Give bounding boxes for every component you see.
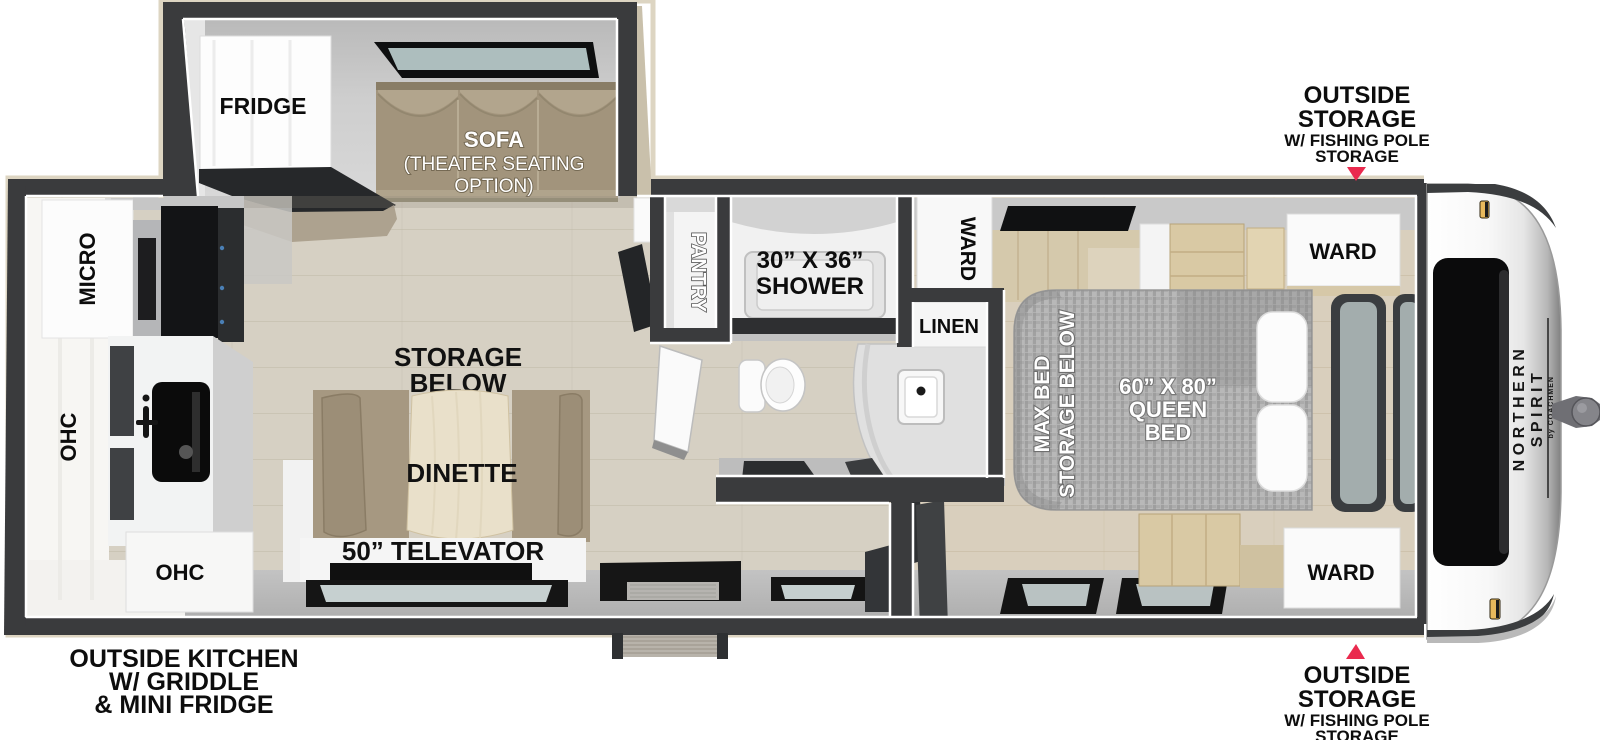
svg-text:DINETTE: DINETTE (406, 458, 517, 488)
svg-text:QUEEN: QUEEN (1129, 397, 1207, 422)
svg-text:OUTSIDE: OUTSIDE (1304, 662, 1411, 689)
svg-text:SHOWER: SHOWER (756, 273, 864, 300)
svg-text:OPTION): OPTION) (454, 176, 533, 197)
svg-text:OHC: OHC (156, 560, 205, 585)
svg-text:OHC: OHC (56, 412, 81, 461)
svg-text:WARD: WARD (1307, 560, 1374, 585)
svg-text:STORAGE: STORAGE (1315, 147, 1399, 166)
svg-text:MAX BED: MAX BED (1031, 356, 1054, 453)
svg-text:STORAGE BELOW: STORAGE BELOW (1056, 310, 1079, 498)
svg-text:60” X 80”: 60” X 80” (1119, 374, 1217, 399)
svg-text:STORAGE: STORAGE (1298, 686, 1416, 713)
svg-text:WARD: WARD (956, 217, 979, 281)
svg-text:SPIRIT: SPIRIT (1529, 369, 1546, 448)
svg-text:BED: BED (1145, 420, 1191, 445)
svg-text:& MINI FRIDGE: & MINI FRIDGE (94, 691, 273, 719)
svg-text:NORTHERN: NORTHERN (1511, 345, 1528, 472)
svg-text:50” TELEVATOR: 50” TELEVATOR (342, 536, 544, 566)
svg-text:WARD: WARD (1309, 239, 1376, 264)
svg-text:(THEATER SEATING: (THEATER SEATING (404, 154, 585, 175)
svg-text:LINEN: LINEN (919, 316, 979, 338)
svg-text:STORAGE: STORAGE (1315, 727, 1399, 740)
svg-text:PANTRY: PANTRY (687, 232, 709, 313)
svg-text:SOFA: SOFA (464, 127, 524, 152)
svg-text:30” X 36”: 30” X 36” (757, 247, 864, 274)
svg-text:FRIDGE: FRIDGE (220, 93, 307, 119)
svg-text:STORAGE: STORAGE (1298, 106, 1416, 133)
svg-text:OUTSIDE: OUTSIDE (1304, 82, 1411, 109)
svg-text:MICRO: MICRO (75, 232, 100, 305)
